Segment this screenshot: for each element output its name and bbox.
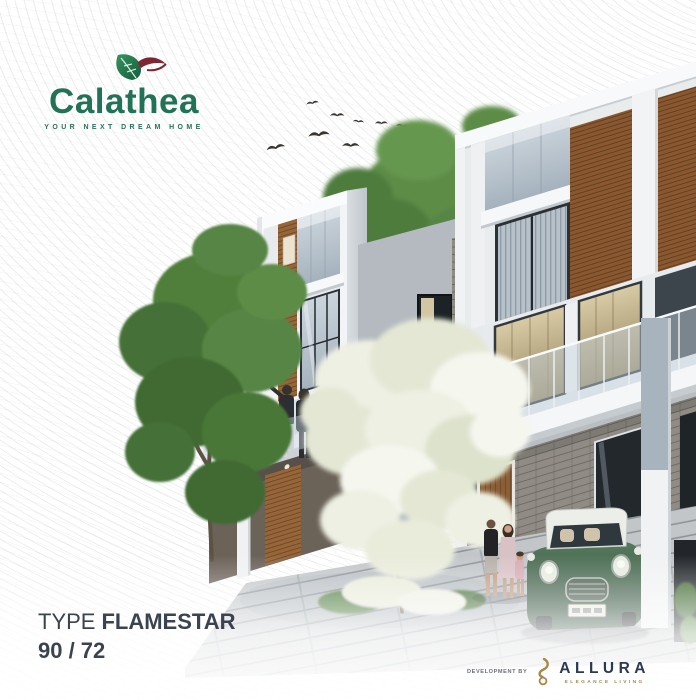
- brand-logo: Calathea YOUR NEXT DREAM HOME: [34, 50, 214, 131]
- brand-tagline: YOUR NEXT DREAM HOME: [34, 124, 214, 131]
- developer-tagline: ELEGANCE LIVING: [565, 680, 645, 685]
- developer-block: DEVELOPMENT BY ALLURA ELEGANCE LIVING: [467, 658, 650, 686]
- poster: Calathea YOUR NEXT DREAM HOME TYPEFLAMES…: [0, 0, 696, 700]
- unit-type-block: TYPEFLAMESTAR 90 / 72: [38, 608, 236, 665]
- unit-type-prefix: TYPE: [38, 609, 95, 634]
- brand-name: Calathea: [34, 84, 214, 121]
- allura-flame-icon: [534, 658, 552, 686]
- unit-size: 90 / 72: [38, 637, 236, 666]
- timber-panel: [570, 109, 632, 299]
- unit-type-name: FLAMESTAR: [101, 609, 235, 634]
- developer-name: ALLURA: [559, 660, 650, 678]
- calathea-leaf-icon: [112, 50, 168, 84]
- developer-prefix: DEVELOPMENT BY: [467, 669, 527, 675]
